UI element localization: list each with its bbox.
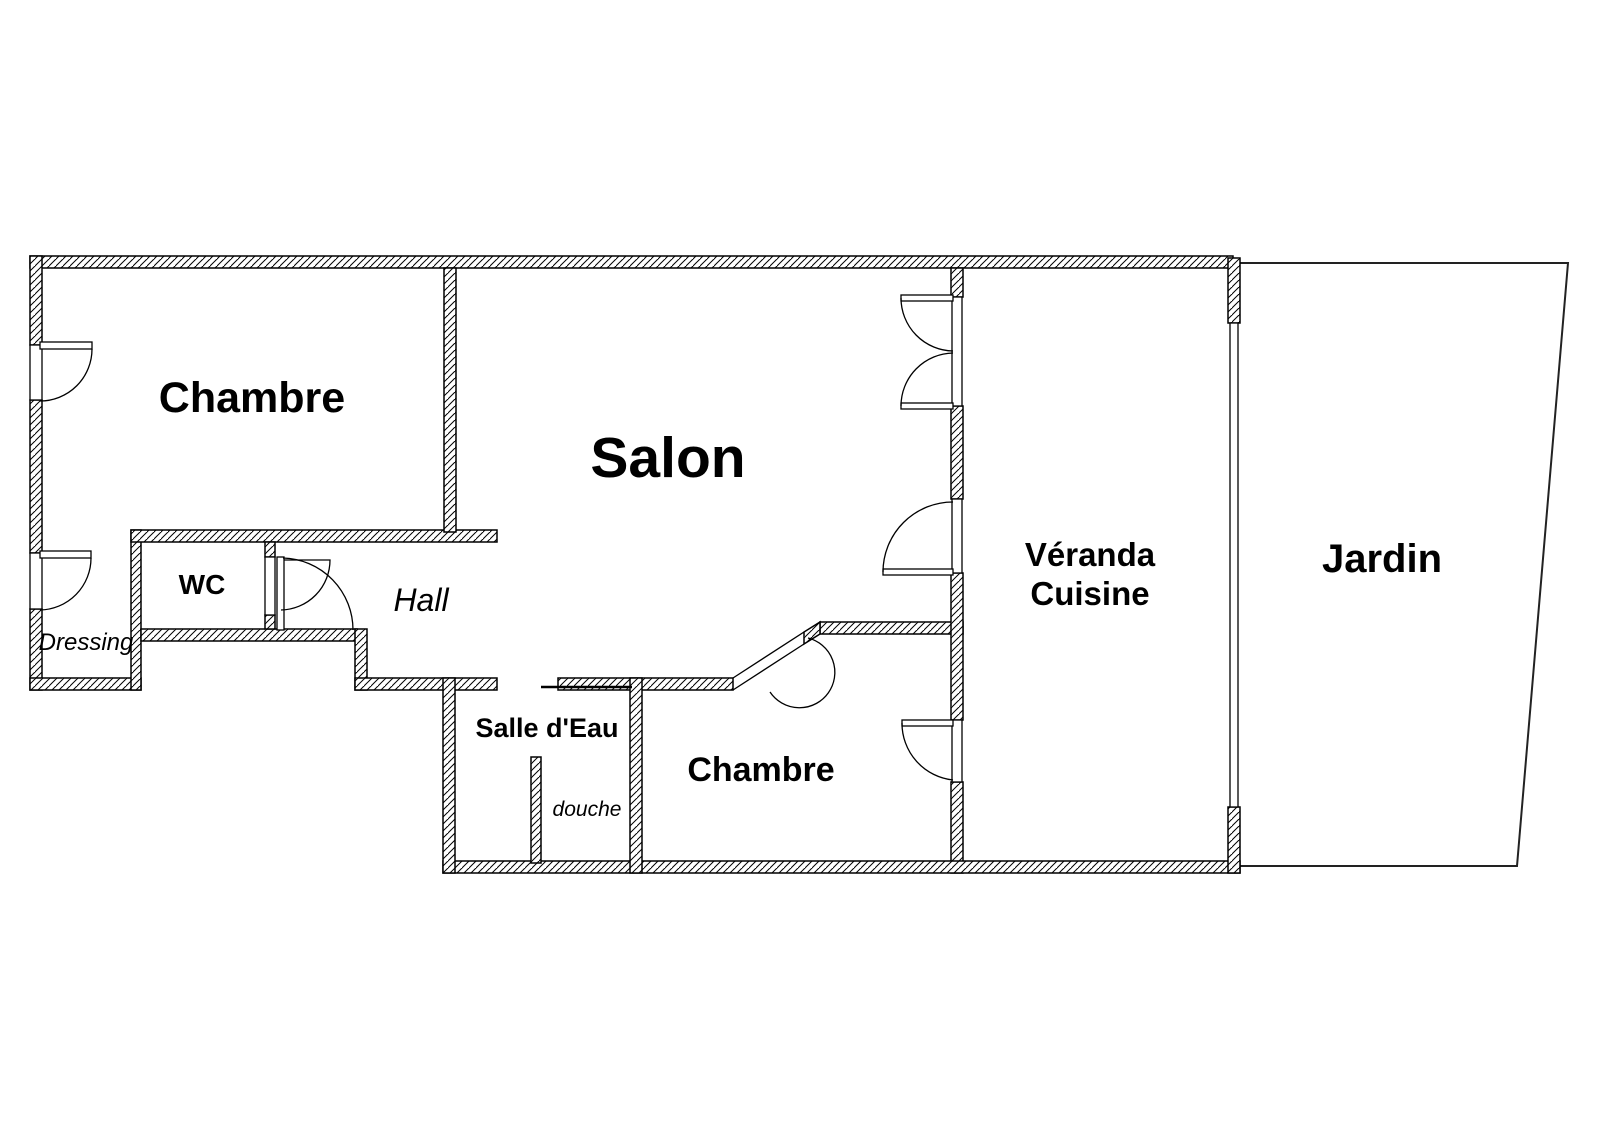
wall-veranda-west-a (951, 268, 963, 297)
wall-dressing-south (30, 678, 141, 690)
veranda-jardin-glazing (1230, 323, 1238, 807)
wall-top-exterior (30, 256, 1233, 268)
wall-chambre1-south (131, 530, 497, 542)
salon-double-door-leaf-upper (901, 295, 953, 301)
wall-veranda-west-d (951, 782, 963, 873)
room-label-veranda-line2: Cuisine (1030, 575, 1149, 612)
room-label-salon: Salon (590, 426, 745, 490)
wall-dressing-wc-divider (131, 530, 141, 690)
wall-veranda-east-lower (1228, 807, 1240, 873)
wall-salle-deau-west (443, 678, 455, 873)
wall-south-exterior (443, 861, 1240, 873)
room-label-jardin: Jardin (1322, 537, 1442, 581)
room-label-dressing: Dressing (39, 629, 134, 656)
veranda-chambre2-door-opening (952, 720, 962, 782)
window-chambre1-opening (30, 345, 42, 400)
wall-wc-south (141, 629, 357, 641)
room-label-wc: WC (179, 569, 226, 600)
dressing-door-leaf (40, 551, 91, 558)
room-label-chambre-bottom: Chambre (687, 751, 834, 789)
room-label-veranda-line1: Véranda (1025, 536, 1156, 573)
wall-salon-chambre-divider (444, 268, 456, 532)
room-label-douche: douche (553, 798, 622, 821)
wall-left-exterior-mid (30, 400, 42, 553)
veranda-double-door-opening (952, 297, 962, 406)
wall-hall-south (355, 678, 497, 690)
chambre1-door-leaf (40, 342, 92, 349)
wall-wc-east-upper (265, 542, 275, 557)
wc-door-opening (265, 557, 275, 615)
salon-double-door-leaf-lower (901, 403, 953, 409)
wall-veranda-west-c (951, 573, 963, 720)
wall-douche-partition (531, 757, 541, 863)
wall-left-exterior-upper (30, 256, 42, 345)
wall-veranda-east-upper (1228, 258, 1240, 323)
room-label-chambre-top: Chambre (159, 374, 345, 422)
wall-salle-deau-east (630, 678, 642, 873)
veranda-single-door-opening (952, 499, 962, 573)
salon-single-door-leaf (883, 569, 953, 575)
floor-plan-page: Chambre Salon WC Hall Dressing Salle d'E… (0, 0, 1600, 1131)
wc-door-leaf (277, 557, 284, 630)
floor-plan-canvas: Chambre Salon WC Hall Dressing Salle d'E… (0, 0, 1600, 1131)
window-dressing-opening (30, 553, 42, 609)
wall-veranda-west-b (951, 406, 963, 499)
wall-chambre2-north (820, 622, 963, 634)
room-label-salle-deau: Salle d'Eau (476, 713, 619, 743)
room-label-hall: Hall (393, 582, 449, 618)
wall-wc-east-lower (265, 615, 275, 629)
chambre2-veranda-door-leaf (902, 720, 953, 726)
